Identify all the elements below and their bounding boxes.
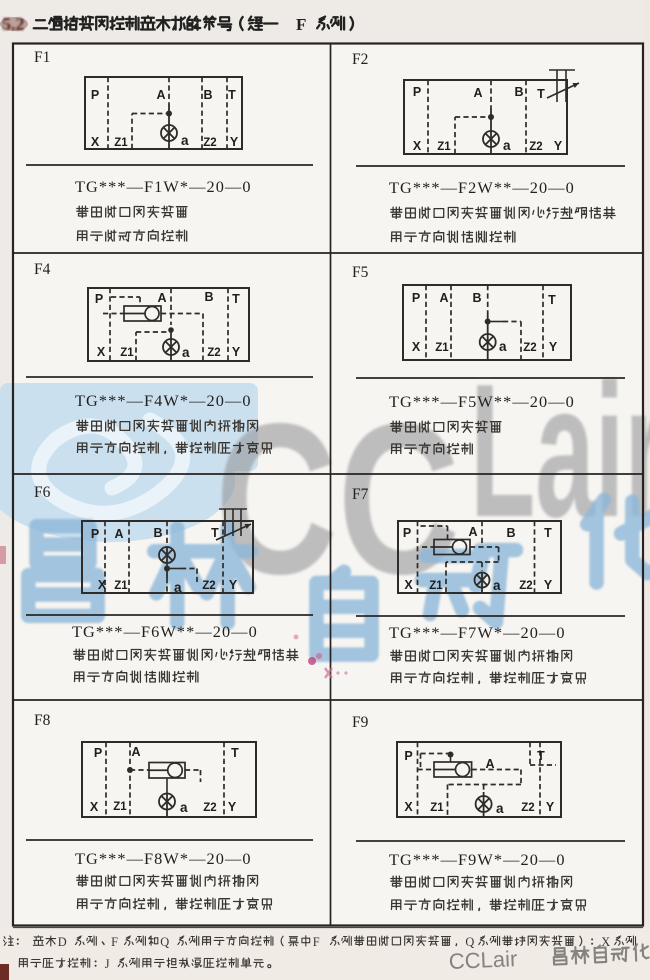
- svg-text:Z1: Z1: [429, 580, 443, 592]
- svg-text:T: T: [548, 293, 556, 307]
- svg-text:X: X: [404, 578, 413, 592]
- svg-text:B: B: [204, 290, 213, 304]
- svg-text:T: T: [537, 749, 545, 763]
- svg-text:a: a: [499, 339, 507, 354]
- svg-text:a: a: [496, 801, 504, 816]
- svg-text:TG***—F9W*—20—0: TG***—F9W*—20—0: [389, 850, 566, 869]
- svg-text:Y: Y: [554, 139, 563, 153]
- svg-text:B: B: [514, 85, 523, 99]
- svg-text:F: F: [111, 935, 118, 949]
- svg-text:TG***—F7W*—20—0: TG***—F7W*—20—0: [389, 623, 566, 642]
- svg-text:Z1: Z1: [114, 580, 128, 592]
- svg-text:CCLair: CCLair: [448, 946, 517, 974]
- svg-text:T: T: [228, 88, 236, 102]
- svg-text:a: a: [174, 580, 182, 595]
- svg-text:T: T: [211, 526, 219, 540]
- svg-text:TG***—F6W**—20—0: TG***—F6W**—20—0: [72, 622, 258, 641]
- svg-text:a: a: [180, 800, 188, 815]
- svg-text:A: A: [156, 88, 165, 102]
- svg-text:X: X: [98, 578, 107, 592]
- svg-text:B: B: [203, 88, 212, 102]
- svg-text:J: J: [105, 957, 110, 971]
- svg-text:Z2: Z2: [203, 802, 216, 814]
- svg-text:A: A: [157, 291, 166, 305]
- svg-text:Z1: Z1: [430, 802, 444, 814]
- svg-text:P: P: [403, 526, 411, 540]
- svg-text:Y: Y: [228, 800, 237, 814]
- svg-text:P: P: [413, 85, 421, 99]
- svg-text:P: P: [95, 292, 103, 306]
- svg-text:Z1: Z1: [120, 347, 134, 359]
- svg-text:TG***—F1W*—20—0: TG***—F1W*—20—0: [75, 177, 252, 196]
- svg-text:F6: F6: [34, 484, 51, 501]
- svg-text:Z1: Z1: [435, 342, 449, 354]
- svg-text:A: A: [439, 291, 448, 305]
- svg-text:P: P: [91, 527, 99, 541]
- svg-text:D: D: [58, 935, 67, 949]
- svg-text:X: X: [90, 800, 99, 814]
- svg-text:TG***—F5W**—20—0: TG***—F5W**—20—0: [389, 392, 575, 411]
- svg-text:Y: Y: [232, 345, 241, 359]
- svg-text:Z2: Z2: [202, 580, 215, 592]
- svg-text:Z1: Z1: [114, 137, 128, 149]
- svg-text:a: a: [503, 138, 511, 153]
- svg-text:P: P: [404, 749, 412, 763]
- svg-text:P: P: [412, 291, 420, 305]
- svg-text:X: X: [413, 139, 422, 153]
- svg-text:5.2: 5.2: [2, 14, 25, 34]
- svg-text:Z2: Z2: [529, 141, 542, 153]
- svg-text:B: B: [506, 526, 515, 540]
- svg-text:F5: F5: [352, 264, 369, 281]
- svg-text:X: X: [412, 340, 421, 354]
- svg-text:A: A: [473, 86, 482, 100]
- svg-text:TG***—F2W**—20—0: TG***—F2W**—20—0: [389, 178, 575, 197]
- svg-text:T: T: [231, 746, 239, 760]
- svg-text:A: A: [131, 745, 140, 759]
- svg-text:A: A: [468, 525, 477, 539]
- svg-text:Z1: Z1: [437, 141, 451, 153]
- svg-text:X: X: [404, 800, 413, 814]
- svg-text:F: F: [313, 935, 320, 949]
- svg-text:F2: F2: [352, 51, 368, 68]
- svg-text:TG***—F4W*—20—0: TG***—F4W*—20—0: [75, 391, 252, 410]
- svg-text:a: a: [182, 345, 190, 360]
- svg-text:Y: Y: [549, 340, 558, 354]
- svg-text:A: A: [114, 527, 123, 541]
- svg-text:Z2: Z2: [523, 342, 536, 354]
- svg-text:F4: F4: [34, 261, 51, 278]
- svg-text:B: B: [153, 526, 162, 540]
- svg-text:X: X: [97, 345, 106, 359]
- svg-text:Y: Y: [544, 578, 553, 592]
- svg-text:T: T: [544, 526, 552, 540]
- svg-text:B: B: [472, 291, 481, 305]
- svg-text:Q: Q: [160, 935, 169, 949]
- svg-text:Y: Y: [229, 578, 238, 592]
- svg-text:Y: Y: [230, 135, 239, 149]
- svg-text:F1: F1: [34, 49, 50, 66]
- svg-text:Y: Y: [546, 800, 555, 814]
- svg-text:F: F: [296, 15, 306, 34]
- svg-text:TG***—F8W*—20—0: TG***—F8W*—20—0: [75, 849, 252, 868]
- svg-text:P: P: [94, 746, 102, 760]
- svg-text:T: T: [232, 292, 240, 306]
- svg-text:T: T: [537, 87, 545, 101]
- svg-text:F7: F7: [352, 486, 369, 503]
- svg-text:a: a: [493, 578, 501, 593]
- svg-text:Z2: Z2: [521, 802, 534, 814]
- svg-text:a: a: [181, 133, 189, 148]
- svg-text:F8: F8: [34, 712, 51, 729]
- svg-text:P: P: [91, 88, 99, 102]
- svg-text:Z2: Z2: [207, 347, 220, 359]
- svg-text:X: X: [91, 135, 100, 149]
- svg-text:Z1: Z1: [113, 801, 127, 813]
- svg-text:Z2: Z2: [203, 137, 216, 149]
- svg-text:Z2: Z2: [519, 580, 532, 592]
- svg-text:F9: F9: [352, 714, 369, 731]
- svg-text:A: A: [485, 757, 494, 771]
